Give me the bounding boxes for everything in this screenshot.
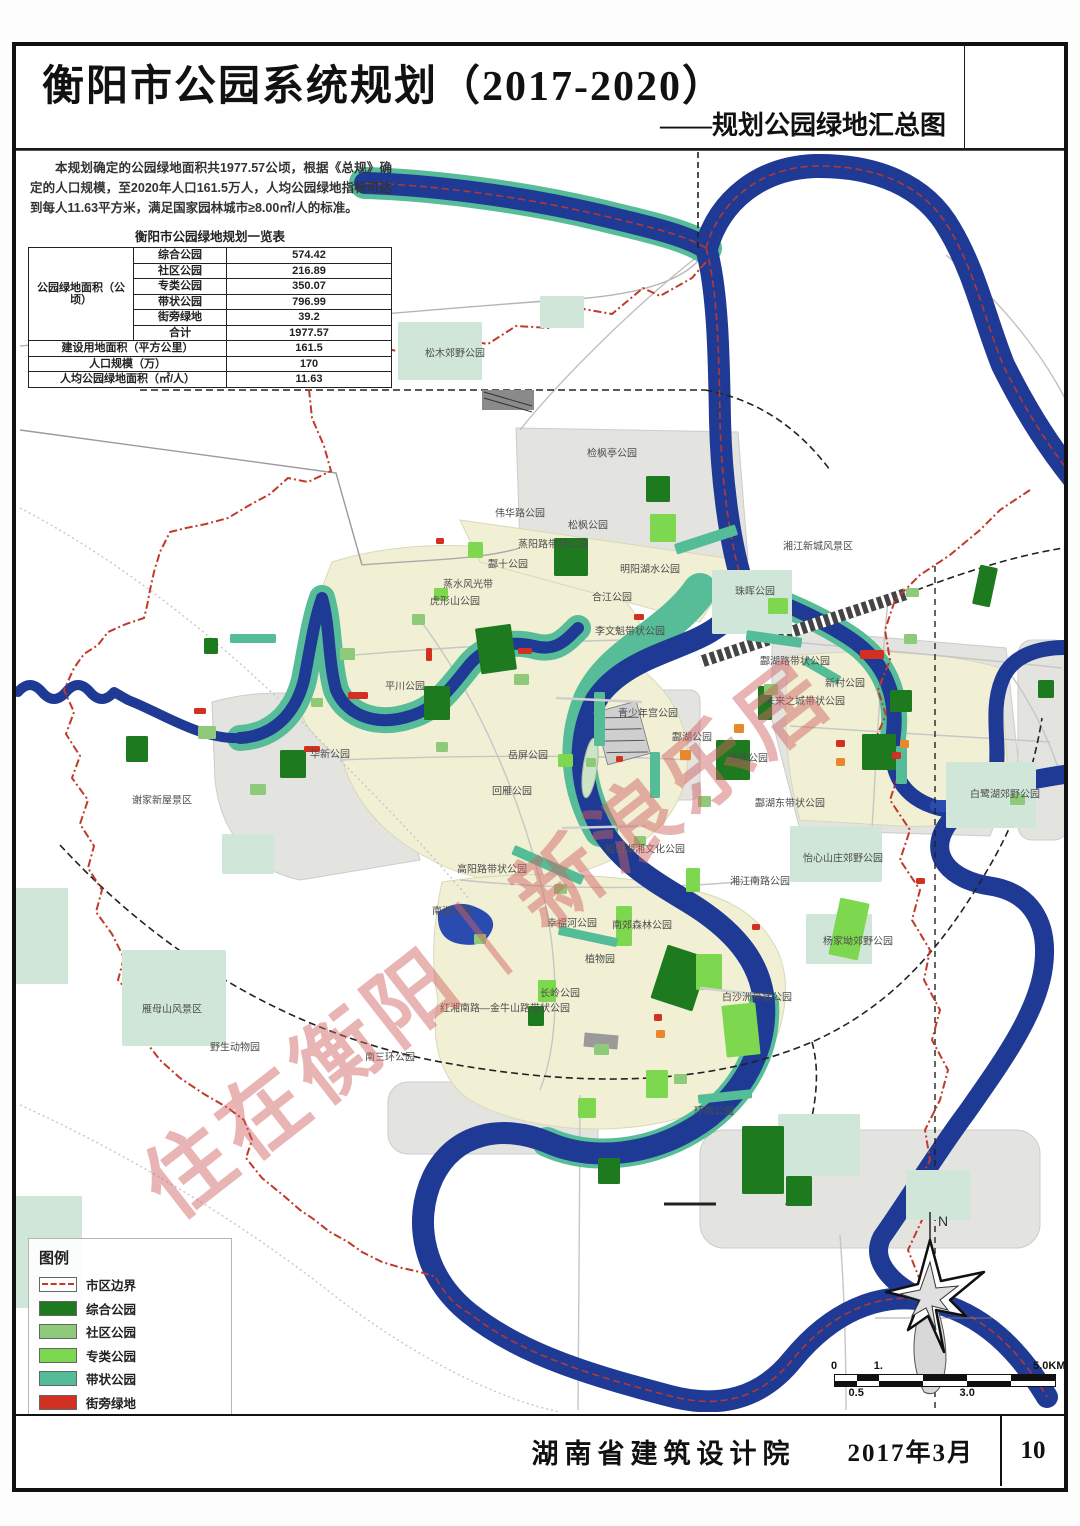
park-patch [594, 1044, 609, 1055]
park-patch [250, 784, 266, 795]
park-patch [688, 4, 708, 32]
legend-label: 带状公园 [86, 1369, 136, 1388]
north-label: N [938, 1213, 948, 1229]
legend-item: 带状公园 [39, 1369, 221, 1388]
park-patch [424, 686, 450, 720]
scale-label: 0.5 [849, 1387, 864, 1399]
legend-item: 街旁绿地 [39, 1393, 221, 1412]
park-patch [586, 758, 596, 767]
table-summary-value: 170 [227, 356, 392, 372]
summary-table-wrap: 衡阳市公园绿地规划一览表 公园绿地面积（公顷）综合公园574.42社区公园216… [28, 226, 392, 388]
park-patch [972, 10, 994, 32]
legend-item: 社区公园 [39, 1322, 221, 1341]
park-patch [514, 674, 529, 685]
sheet-number: 10 [1000, 1416, 1064, 1486]
park-patch [204, 638, 218, 654]
park-patch [16, 888, 68, 984]
park-patch [474, 934, 486, 944]
plan-sheet: N 松木郊野公园检枫亭公园伟华路公园松枫公园蒸阳路带状公园酃十公园虎形山公园明阳… [0, 0, 1080, 1526]
table-row-value: 350.07 [227, 279, 392, 295]
park-patch [412, 614, 425, 625]
park-patch [654, 1014, 662, 1021]
legend-item: 专类公园 [39, 1346, 221, 1365]
table-summary-label: 建设用地面积（平方公里） [29, 341, 227, 357]
table-title: 衡阳市公园绿地规划一览表 [28, 226, 392, 245]
boundary-line-swatch [39, 1277, 77, 1292]
park-patch [680, 750, 691, 760]
table-row-label: 带状公园 [134, 294, 227, 310]
park-patch [734, 724, 744, 733]
legend-item: 市区边界 [39, 1275, 221, 1294]
park-patch [1010, 794, 1025, 805]
table-row-value: 216.89 [227, 263, 392, 279]
color-swatch [39, 1301, 77, 1316]
scale-label: 1. [874, 1360, 883, 1372]
table-row-label: 街旁绿地 [134, 310, 227, 326]
park-patch [764, 684, 778, 695]
park-patch [674, 1074, 687, 1084]
scale-bar-graphic [834, 1374, 1056, 1387]
park-patch [468, 542, 483, 558]
color-swatch [39, 1371, 77, 1386]
title-right-divider [964, 46, 965, 148]
color-swatch [39, 1324, 77, 1339]
park-patch [540, 296, 584, 328]
table-group-label: 公园绿地面积（公顷） [29, 248, 134, 341]
park-area-table: 公园绿地面积（公顷）综合公园574.42社区公园216.89专类公园350.07… [28, 247, 392, 388]
scale-labels-bottom: 0.53.0 [834, 1387, 1056, 1401]
park-patch [888, 6, 914, 32]
park-patch [721, 1002, 760, 1057]
park-patch [752, 924, 760, 930]
page-title: 衡阳市公园系统规划（2017-2020） [42, 52, 726, 113]
park-patch [904, 634, 917, 644]
title-block: 衡阳市公园系统规划（2017-2020） ——规划公园绿地汇总图 [16, 46, 1064, 150]
scale-bar: 01.5.0KM 0.53.0 [834, 1360, 1056, 1401]
park-patch [398, 322, 482, 380]
scale-label: 0 [831, 1360, 837, 1372]
park-patch [311, 698, 323, 707]
legend-title: 图例 [39, 1247, 221, 1268]
park-patch [634, 614, 644, 620]
park-patch [280, 750, 306, 778]
park-patch [862, 734, 896, 770]
park-patch [554, 538, 588, 576]
legend-item: 综合公园 [39, 1299, 221, 1318]
park-patch [836, 758, 845, 766]
park-patch [304, 746, 320, 752]
table-row-label: 综合公园 [134, 248, 227, 264]
table-row-value: 796.99 [227, 294, 392, 310]
color-swatch [39, 1348, 77, 1363]
park-patch [892, 752, 901, 759]
park-patch [598, 1158, 620, 1184]
park-patch [518, 648, 532, 654]
park-patch [348, 692, 368, 699]
park-patch [896, 746, 907, 784]
park-patch [634, 836, 646, 846]
park-patch [646, 476, 670, 502]
scale-labels-top: 01.5.0KM [834, 1360, 1056, 1374]
park-patch [786, 1176, 812, 1206]
park-patch [812, 0, 842, 36]
legend-label: 社区公园 [86, 1322, 136, 1341]
park-patch [686, 868, 700, 892]
park-patch [650, 752, 660, 798]
park-patch [1038, 680, 1054, 698]
park-patch [716, 740, 750, 780]
park-patch [916, 878, 925, 884]
design-institute: 湖南省建筑设计院 [531, 1432, 795, 1471]
park-patch [650, 514, 676, 542]
scale-label: 3.0 [960, 1387, 975, 1399]
legend-label: 市区边界 [86, 1275, 136, 1294]
park-patch [426, 648, 432, 661]
park-patch [554, 884, 567, 894]
park-patch [696, 954, 722, 990]
legend-label: 街旁绿地 [86, 1393, 136, 1412]
park-patch [860, 650, 884, 659]
color-swatch [39, 1395, 77, 1410]
park-patch [436, 538, 444, 544]
park-patch [900, 740, 909, 748]
park-patch [778, 1114, 860, 1176]
park-patch [528, 1006, 544, 1026]
table-summary-value: 161.5 [227, 341, 392, 357]
legend-label: 专类公园 [86, 1346, 136, 1365]
intro-paragraph: 本规划确定的公园绿地面积共1977.57公顷，根据《总规》确定的人口规模，至20… [30, 158, 392, 218]
table-row-value: 574.42 [227, 248, 392, 264]
park-patch [558, 754, 573, 767]
park-patch [906, 588, 919, 597]
table-summary-label: 人均公园绿地面积（㎡/人） [29, 372, 227, 388]
park-patch [890, 690, 912, 712]
park-patch [126, 736, 148, 762]
park-patch [790, 826, 882, 882]
park-patch [122, 950, 226, 1046]
table-row-value: 39.2 [227, 310, 392, 326]
park-patch [578, 1098, 596, 1118]
page-subtitle: ——规划公园绿地汇总图 [660, 105, 946, 142]
park-patch [836, 740, 845, 747]
park-patch [646, 1070, 668, 1098]
park-patch [698, 796, 711, 807]
park-patch [538, 980, 556, 1002]
park-patch [230, 634, 276, 643]
sheet-date: 2017年3月 [847, 1433, 974, 1469]
park-patch [340, 648, 355, 660]
table-row-label: 专类公园 [134, 279, 227, 295]
park-patch [434, 588, 448, 600]
table-row-label: 合计 [134, 325, 227, 341]
legend-label: 综合公园 [86, 1299, 136, 1318]
park-patch [198, 726, 216, 739]
park-patch [656, 1030, 665, 1038]
table-row-value: 1977.57 [227, 325, 392, 341]
scale-label: 5.0KM [1033, 1360, 1065, 1372]
park-patch [222, 834, 274, 874]
table-row-label: 社区公园 [134, 263, 227, 279]
table-summary-value: 11.63 [227, 372, 392, 388]
park-patch [194, 708, 206, 714]
park-patch [616, 756, 623, 762]
park-patch [758, 8, 770, 24]
footer-bar: 湖南省建筑设计院 2017年3月 10 [16, 1414, 1064, 1486]
table-summary-label: 人口规模（万） [29, 356, 227, 372]
park-patch [616, 906, 632, 946]
park-patch [475, 624, 517, 675]
park-patch [436, 742, 448, 752]
park-patch [768, 598, 788, 614]
park-patch [742, 1126, 784, 1194]
